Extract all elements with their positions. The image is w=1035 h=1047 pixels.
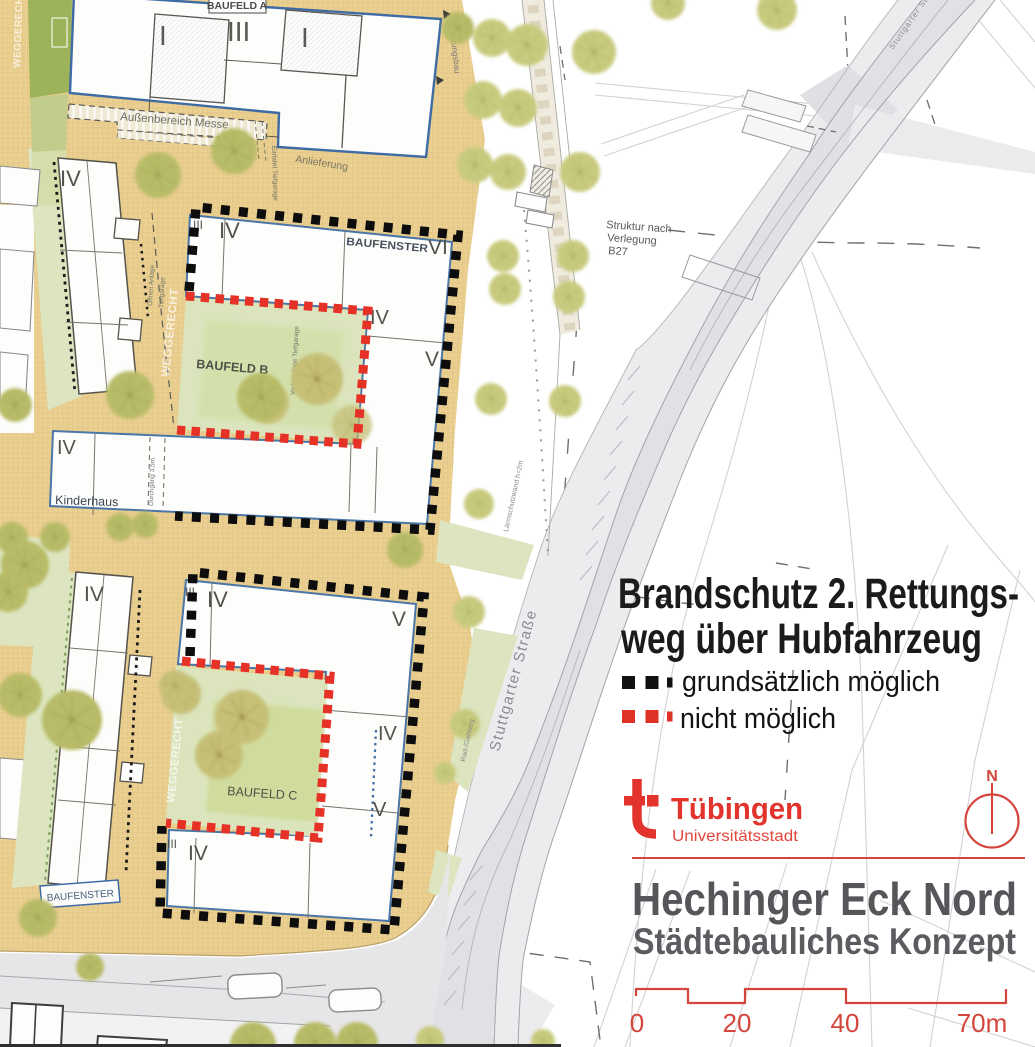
- svg-text:III: III: [167, 837, 177, 851]
- svg-text:BAUFELD A: BAUFELD A: [207, 0, 268, 12]
- svg-text:Hechinger Eck Nord: Hechinger Eck Nord: [632, 873, 1017, 925]
- svg-text:III: III: [227, 16, 250, 47]
- svg-text:IV: IV: [84, 583, 104, 606]
- svg-text:I: I: [159, 20, 167, 51]
- svg-text:N: N: [986, 768, 998, 785]
- svg-text:IV: IV: [207, 587, 228, 612]
- svg-text:B27: B27: [608, 245, 628, 258]
- svg-text:weg über Hubfahrzeug: weg über Hubfahrzeug: [620, 616, 982, 663]
- svg-text:Universitätsstadt: Universitätsstadt: [672, 828, 799, 845]
- svg-text:V: V: [373, 799, 387, 821]
- svg-text:IV: IV: [219, 218, 240, 243]
- svg-text:Tübingen: Tübingen: [671, 791, 803, 826]
- svg-text:IV: IV: [370, 307, 390, 329]
- svg-text:grundsätzlich möglich: grundsätzlich möglich: [682, 666, 940, 698]
- svg-text:70m: 70m: [957, 1008, 1008, 1038]
- svg-text:IV: IV: [188, 842, 208, 865]
- svg-text:Städtebauliches Konzept: Städtebauliches Konzept: [633, 921, 1016, 962]
- svg-text:20: 20: [723, 1008, 752, 1038]
- svg-text:Kinderhaus: Kinderhaus: [55, 493, 119, 509]
- svg-text:IV: IV: [378, 723, 398, 745]
- svg-text:VI: VI: [428, 236, 448, 259]
- svg-text:0: 0: [630, 1008, 644, 1038]
- svg-text:IV: IV: [57, 437, 77, 459]
- svg-text:40: 40: [831, 1008, 860, 1038]
- svg-text:IV: IV: [60, 166, 81, 191]
- svg-text:V: V: [392, 608, 406, 631]
- svg-text:V: V: [425, 348, 439, 371]
- svg-text:nicht möglich: nicht möglich: [680, 703, 836, 735]
- svg-text:Brandschutz 2. Rettungs-: Brandschutz 2. Rettungs-: [618, 571, 1019, 618]
- svg-text:I: I: [301, 22, 309, 53]
